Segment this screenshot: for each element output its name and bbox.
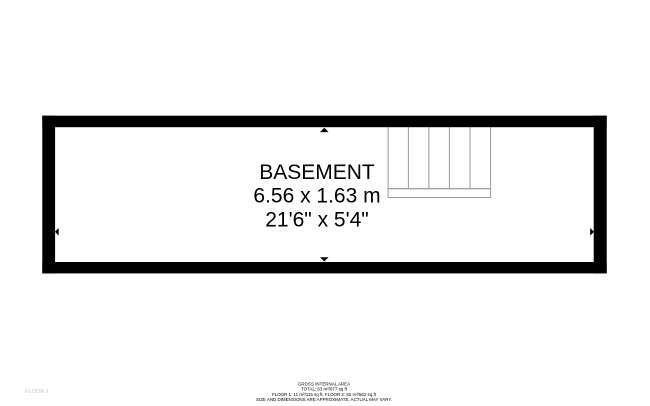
svg-text:TOTAL: 63 m²/677 sq ft: TOTAL: 63 m²/677 sq ft: [301, 387, 348, 392]
svg-text:6.56 x 1.63 m: 6.56 x 1.63 m: [253, 185, 380, 208]
svg-text:BASEMENT: BASEMENT: [259, 161, 375, 184]
svg-text:21'6" x 5'4": 21'6" x 5'4": [265, 209, 369, 232]
svg-text:FLOOR 1: FLOOR 1: [25, 389, 49, 395]
svg-text:SIZE AND DIMENSIONS ARE APPROX: SIZE AND DIMENSIONS ARE APPROXIMATE, ACT…: [256, 397, 392, 402]
